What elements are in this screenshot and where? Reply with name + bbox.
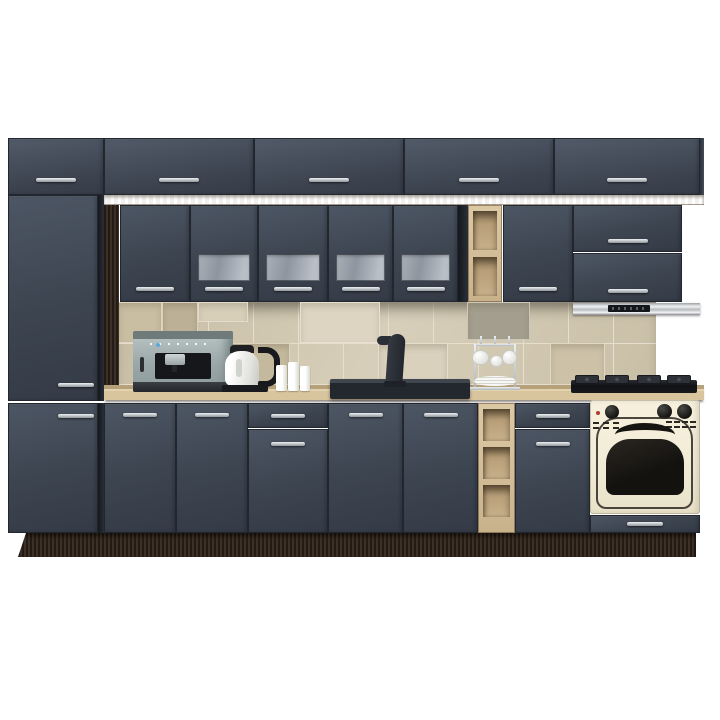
- drawer-handle: [627, 522, 663, 526]
- oven-knob: [677, 404, 692, 419]
- base-door-under-drawer-1: [248, 429, 328, 533]
- door-handle: [519, 287, 557, 291]
- candle: [288, 362, 299, 391]
- door-handle: [459, 178, 499, 182]
- backsplash-tile: [300, 302, 380, 343]
- door-handle: [607, 178, 647, 182]
- drawer-handle: [536, 414, 570, 418]
- oven-window: [606, 439, 684, 495]
- kettle-water-window: [236, 359, 242, 377]
- base-door-under-drawer-2: [515, 429, 590, 533]
- faucet-neck: [385, 334, 406, 386]
- cornice-door-1: [8, 138, 104, 195]
- burner-grate: [667, 375, 691, 384]
- pantry-side-edge: [98, 195, 104, 401]
- cornice-door-5: [554, 138, 700, 195]
- gas-hob: [571, 374, 697, 396]
- door-handle: [342, 287, 380, 291]
- cornice-door-3: [254, 138, 404, 195]
- mug-stand: [470, 336, 520, 392]
- frosted-glass-band: [198, 254, 250, 281]
- white-mug: [472, 350, 489, 365]
- kettle-body: [225, 351, 259, 387]
- frosted-glass-band: [336, 254, 385, 281]
- kettle-base: [222, 385, 268, 392]
- door-handle: [608, 289, 648, 293]
- wall-cabinet-door-glass-3: [328, 205, 393, 302]
- shelf-cubby: [483, 485, 510, 517]
- base-door-2: [176, 403, 248, 533]
- machine-spout: [172, 365, 177, 372]
- burner-grate: [605, 375, 629, 384]
- door-handle: [274, 287, 312, 291]
- door-handle: [536, 442, 570, 446]
- wall-cabinet-side: [458, 205, 468, 302]
- pantry-lower-door: [8, 403, 98, 533]
- door-handle: [58, 383, 94, 387]
- wall-cabinet-door-plain: [120, 205, 190, 302]
- frosted-glass-band: [266, 254, 320, 281]
- door-handle: [309, 178, 349, 182]
- frosted-glass-band: [401, 254, 450, 281]
- burner-grate: [575, 375, 599, 384]
- door-handle: [424, 413, 458, 417]
- base-drawer-2: [515, 403, 590, 428]
- door-handle: [205, 287, 243, 291]
- base-drawer-1: [248, 403, 328, 428]
- machine-top: [133, 331, 233, 339]
- machine-blue-light: [156, 343, 160, 347]
- plate-stack: [474, 376, 516, 386]
- base-open-shelf-column: [478, 403, 515, 533]
- faucet-base: [384, 381, 406, 387]
- retro-oven: [590, 400, 700, 514]
- hood-control-panel: [608, 305, 650, 312]
- cornice-door-2: [104, 138, 254, 195]
- extractor-hood: [573, 303, 700, 315]
- sink-base-door-right: [403, 403, 478, 533]
- candle: [276, 365, 287, 391]
- hood-cabinet-flip-door-top: [573, 205, 682, 252]
- base-door-1: [104, 403, 176, 533]
- stand-top-bar: [474, 344, 516, 346]
- hood-buttons: [612, 307, 646, 310]
- espresso-machine: [133, 331, 233, 392]
- wall-cabinet-door-glass-1: [190, 205, 258, 302]
- door-handle: [407, 287, 445, 291]
- oak-top-strip: [104, 195, 704, 205]
- white-mug: [502, 350, 517, 365]
- wenge-plinth: [18, 533, 696, 557]
- door-handle: [195, 413, 229, 417]
- wenge-side-panel: [104, 205, 119, 385]
- wall-open-shelf-column: [468, 205, 502, 302]
- door-handle: [58, 414, 94, 418]
- door-handle: [349, 413, 383, 417]
- sink-base-door-left: [328, 403, 403, 533]
- drawer-handle: [271, 414, 305, 418]
- shelf-cubby: [483, 409, 510, 441]
- burner-grate: [637, 375, 661, 384]
- machine-group-head: [165, 354, 185, 365]
- door-handle: [123, 413, 157, 417]
- stand-base: [470, 387, 520, 390]
- shelf-cubby: [473, 211, 497, 250]
- backsplash-tile: [467, 302, 530, 340]
- kitchen-set-product-photo: [0, 0, 720, 720]
- wall-cabinet-door-tall: [503, 205, 573, 302]
- wall-cabinet-door-glass-2: [258, 205, 328, 302]
- backsplash-tile: [198, 302, 248, 322]
- shelf-cubby: [483, 447, 510, 479]
- door-handle: [136, 287, 174, 291]
- oven-bottom-drawer: [590, 515, 700, 533]
- shelf-cubby: [473, 257, 497, 296]
- hood-cabinet-flip-door-bottom: [573, 253, 682, 302]
- door-handle: [271, 442, 305, 446]
- door-handle: [36, 178, 76, 182]
- candle: [300, 366, 310, 391]
- cornice-door-4: [404, 138, 554, 195]
- cornice-side-facet: [700, 138, 704, 195]
- wall-cabinet-door-glass-4: [393, 205, 458, 302]
- machine-steam-wand: [140, 357, 144, 372]
- machine-drip-tray: [133, 382, 233, 392]
- oven-indicator-light: [596, 411, 600, 415]
- pantry-upper-door: [8, 195, 98, 401]
- door-handle: [608, 239, 648, 243]
- door-handle: [159, 178, 199, 182]
